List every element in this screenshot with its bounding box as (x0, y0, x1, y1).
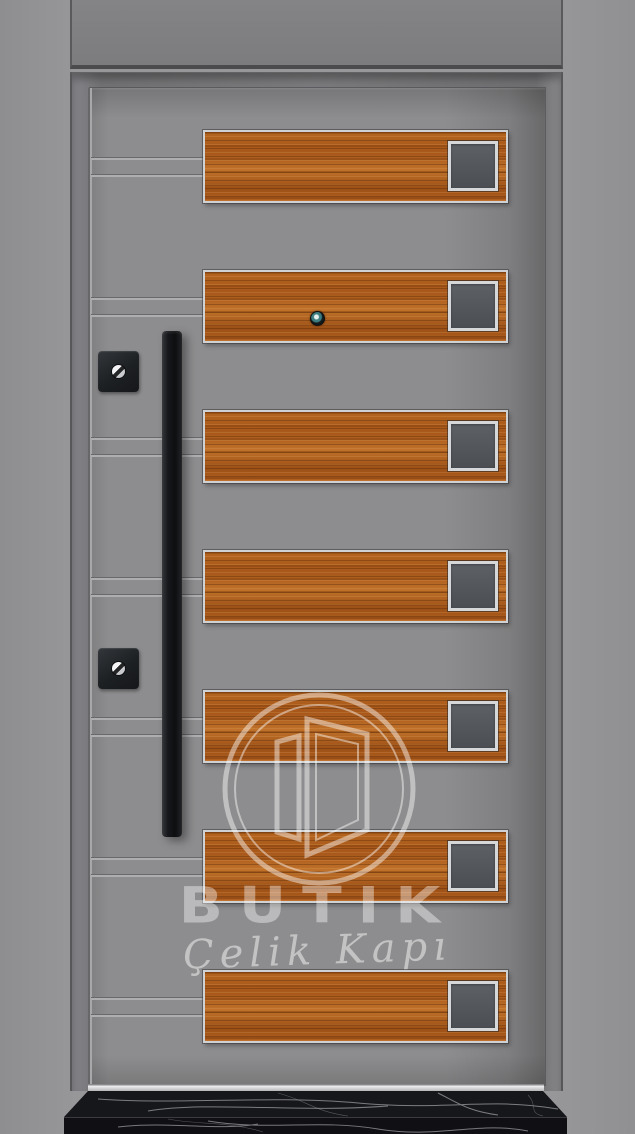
keyhole-icon (111, 661, 126, 676)
groove-line (91, 997, 204, 1000)
lock-cover (98, 648, 139, 689)
groove-line (91, 437, 204, 440)
wood-panel (203, 550, 508, 623)
transom-panel (70, 0, 563, 69)
marble-threshold-step (58, 1091, 577, 1134)
hinge-side-groove (88, 88, 92, 1085)
groove-line (91, 1014, 204, 1017)
panel-inset-square (448, 141, 498, 191)
wood-panel (203, 830, 508, 903)
groove-line (91, 577, 204, 580)
panel-inset-square (448, 981, 498, 1031)
panel-inset-square (448, 281, 498, 331)
wood-panel (203, 130, 508, 203)
groove-line (91, 157, 204, 160)
wood-panel (203, 410, 508, 483)
groove-line (91, 297, 204, 300)
groove-line (91, 454, 204, 457)
wood-panel (203, 970, 508, 1043)
panel-inset-square (448, 421, 498, 471)
panel-inset-square (448, 561, 498, 611)
door-handle (162, 331, 182, 837)
groove-line (91, 874, 204, 877)
lock-cover (98, 351, 139, 392)
groove-line (91, 594, 204, 597)
groove-line (91, 734, 204, 737)
panel-inset-square (448, 701, 498, 751)
keyhole-icon (111, 364, 126, 379)
threshold-sill-strip (88, 1084, 544, 1091)
groove-line (91, 857, 204, 860)
wood-panel (203, 270, 508, 343)
groove-line (91, 314, 204, 317)
panel-inset-square (448, 841, 498, 891)
groove-line (91, 717, 204, 720)
wood-panel (203, 690, 508, 763)
peephole (310, 311, 325, 326)
groove-line (91, 174, 204, 177)
door-product-photo: BUTIK Çelik Kapı (0, 0, 635, 1134)
